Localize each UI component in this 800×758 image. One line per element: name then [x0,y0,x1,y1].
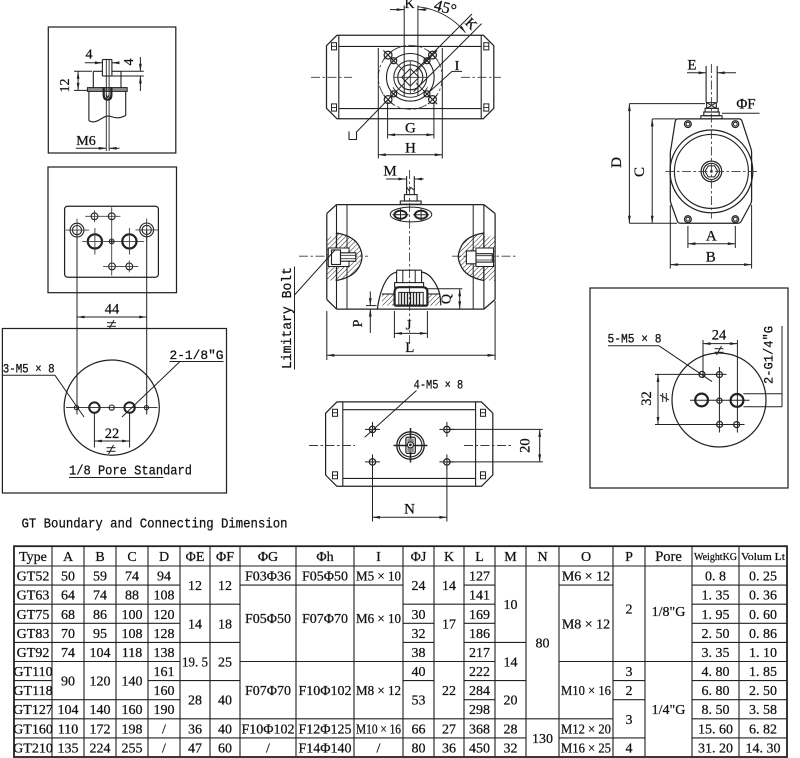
svg-text:ΦG: ΦG [258,550,278,565]
svg-text:M: M [383,164,396,180]
svg-text:F07Φ70: F07Φ70 [302,612,348,627]
svg-text:GT63: GT63 [17,589,50,604]
svg-text:4. 80: 4. 80 [702,665,730,680]
svg-text:M16 × 25: M16 × 25 [561,742,611,757]
svg-text:6. 80: 6. 80 [702,684,730,699]
svg-text:N: N [537,550,547,565]
svg-text:10: 10 [504,598,518,613]
svg-text:2: 2 [626,684,633,699]
svg-text:H: H [405,140,416,156]
svg-text:36: 36 [442,742,456,757]
svg-text:0. 8: 0. 8 [705,570,726,585]
svg-text:5-M5 × 8: 5-M5 × 8 [608,332,662,346]
svg-text:20: 20 [518,438,534,453]
svg-text:P: P [351,319,366,327]
svg-text:450: 450 [469,742,490,757]
svg-text:298: 298 [469,703,490,718]
svg-text:80: 80 [412,742,426,757]
svg-text:0. 86: 0. 86 [749,627,777,642]
svg-text:B: B [706,250,716,266]
svg-text:3-M5 × 8: 3-M5 × 8 [3,363,55,377]
svg-text:32: 32 [639,391,655,406]
svg-text:Limitary Bolt: Limitary Bolt [280,267,296,369]
svg-text:172: 172 [90,722,111,737]
svg-text:22: 22 [442,684,456,699]
svg-text:2. 50: 2. 50 [702,627,730,642]
svg-text:222: 222 [469,665,490,680]
svg-text:6. 82: 6. 82 [749,722,777,737]
svg-text:GT Boundary and Connecting Dim: GT Boundary and Connecting Dimension [22,517,288,533]
svg-text:GT75: GT75 [17,608,50,623]
svg-text:GT210: GT210 [13,742,53,757]
svg-text:B: B [95,550,104,565]
svg-text:0. 25: 0. 25 [749,570,777,585]
svg-text:130: 130 [532,732,553,747]
svg-text:A: A [706,229,717,245]
svg-text:1/8"G: 1/8"G [652,605,686,620]
svg-text:G: G [405,121,416,137]
svg-text:104: 104 [58,703,79,718]
svg-text:4-M5 × 8: 4-M5 × 8 [414,379,464,393]
svg-text:F10Φ102: F10Φ102 [241,722,294,737]
svg-text:O: O [581,550,591,565]
svg-text:8. 50: 8. 50 [702,703,730,718]
svg-text:127: 127 [469,570,490,585]
svg-text:/: / [377,742,381,757]
svg-text:/: / [162,742,166,757]
svg-text:1. 35: 1. 35 [702,589,730,604]
svg-text:K: K [444,550,454,565]
svg-text:50: 50 [61,570,75,585]
svg-text:2-1/8"G: 2-1/8"G [170,349,224,363]
svg-text:3. 35: 3. 35 [702,646,730,661]
svg-text:24: 24 [712,328,727,344]
svg-text:Pore: Pore [655,549,682,565]
svg-text:27: 27 [442,722,456,737]
svg-text:88: 88 [125,589,139,604]
svg-text:108: 108 [154,589,175,604]
svg-text:1. 85: 1. 85 [749,665,777,680]
svg-text:L: L [405,340,414,356]
svg-text:108: 108 [122,627,143,642]
svg-text:53: 53 [412,694,426,709]
svg-text:36: 36 [188,722,202,737]
svg-text:110: 110 [58,722,78,737]
svg-text:20: 20 [504,694,518,709]
svg-text:74: 74 [61,646,75,661]
svg-text:74: 74 [125,570,139,585]
svg-text:14: 14 [504,656,518,671]
svg-text:17: 17 [442,617,456,632]
svg-text:186: 186 [469,627,490,642]
svg-text:GT160: GT160 [13,722,53,737]
svg-text:4: 4 [626,742,633,757]
svg-text:95: 95 [93,627,107,642]
svg-text:0. 60: 0. 60 [749,608,777,623]
svg-text:80: 80 [536,636,550,651]
svg-text:66: 66 [412,722,426,737]
svg-text:M10 × 16: M10 × 16 [561,684,611,699]
svg-text:47: 47 [188,742,202,757]
svg-text:217: 217 [469,646,490,661]
svg-text:100: 100 [122,608,143,623]
svg-text:24: 24 [412,579,426,594]
svg-text:4: 4 [86,48,93,63]
svg-text:22: 22 [105,426,120,442]
svg-text:E: E [687,58,696,74]
svg-text:I: I [376,550,381,565]
svg-text:18: 18 [218,617,232,632]
svg-text:M12 × 20: M12 × 20 [561,722,611,737]
svg-text:Type: Type [19,550,47,565]
svg-text:Q: Q [440,294,455,304]
svg-text:C: C [127,550,136,565]
svg-text:A: A [63,550,74,565]
svg-text:160: 160 [122,703,143,718]
svg-text:L: L [475,550,484,565]
svg-text:12: 12 [58,79,73,93]
svg-text:2. 50: 2. 50 [749,684,777,699]
svg-text:1. 10: 1. 10 [749,646,777,661]
svg-text:F07Φ70: F07Φ70 [245,684,291,699]
svg-text:3: 3 [626,665,633,680]
svg-text:44: 44 [105,302,120,318]
svg-text:135: 135 [58,742,79,757]
svg-text:40: 40 [412,665,426,680]
svg-text:128: 128 [154,627,175,642]
svg-text:70: 70 [61,627,75,642]
svg-text:N: N [404,501,415,517]
svg-text:64: 64 [61,589,75,604]
svg-text:GT127: GT127 [13,703,53,718]
svg-text:F14Φ140: F14Φ140 [298,742,351,757]
svg-text:30: 30 [412,608,426,623]
svg-text:M6: M6 [76,134,95,149]
svg-text:140: 140 [90,703,111,718]
svg-text:M5 × 10: M5 × 10 [356,570,401,585]
svg-text:12: 12 [218,579,232,594]
svg-text:28: 28 [188,694,202,709]
svg-text:169: 169 [469,608,490,623]
svg-text:M6 × 12: M6 × 12 [562,570,610,585]
svg-text:15. 60: 15. 60 [698,722,733,737]
svg-text:74: 74 [93,589,107,604]
svg-text:28: 28 [504,722,518,737]
svg-text:F03Φ36: F03Φ36 [245,570,291,585]
svg-text:59: 59 [93,570,107,585]
svg-text:31. 20: 31. 20 [698,742,733,757]
svg-text:14: 14 [188,617,202,632]
svg-text:J: J [406,317,412,333]
svg-text:K: K [404,0,414,12]
svg-text:GT118: GT118 [13,684,52,699]
svg-text:120: 120 [90,675,111,690]
svg-text:M: M [504,550,517,565]
svg-text:190: 190 [154,703,175,718]
svg-text:F12Φ125: F12Φ125 [298,722,351,737]
svg-text:120: 120 [154,608,175,623]
svg-text:ΦF: ΦF [216,550,234,565]
svg-text:118: 118 [122,646,142,661]
svg-text:GT92: GT92 [17,646,50,661]
svg-text:F05Φ50: F05Φ50 [302,570,348,585]
svg-text:M8 × 12: M8 × 12 [356,684,401,699]
svg-text:160: 160 [154,684,175,699]
svg-text:86: 86 [93,608,107,623]
svg-text:2-G1/4"G: 2-G1/4"G [762,326,777,384]
svg-text:198: 198 [122,722,143,737]
svg-text:1. 95: 1. 95 [702,608,730,623]
svg-text:F05Φ50: F05Φ50 [245,612,291,627]
svg-text:19. 5: 19. 5 [182,656,208,671]
svg-text:Volum Lt: Volum Lt [741,551,785,563]
svg-text:138: 138 [154,646,175,661]
svg-text:32: 32 [412,627,426,642]
svg-text:224: 224 [90,742,111,757]
svg-text:ΦJ: ΦJ [411,550,427,565]
svg-text:60: 60 [218,742,232,757]
svg-text:32: 32 [504,742,518,757]
svg-text:D: D [609,157,625,168]
svg-text:40: 40 [218,722,232,737]
svg-text:GT83: GT83 [17,627,50,642]
svg-text:38: 38 [412,646,426,661]
svg-text:ΦE: ΦE [186,550,205,565]
svg-text:C: C [632,167,648,177]
svg-text:Φh: Φh [316,550,333,565]
svg-text:94: 94 [157,570,171,585]
svg-text:161: 161 [154,665,175,680]
svg-text:/: / [162,722,166,737]
svg-text:12: 12 [188,579,202,594]
svg-text:/: / [266,742,270,757]
svg-text:WeightKG: WeightKG [694,551,737,563]
svg-text:14. 30: 14. 30 [746,742,781,757]
svg-text:F10Φ102: F10Φ102 [298,684,351,699]
svg-text:P: P [625,550,633,565]
svg-text:D: D [159,550,169,565]
svg-text:140: 140 [122,675,143,690]
svg-text:104: 104 [90,646,111,661]
svg-text:40: 40 [218,694,232,709]
svg-text:GT52: GT52 [17,570,50,585]
svg-text:255: 255 [122,742,143,757]
svg-text:368: 368 [469,722,490,737]
svg-text:4: 4 [122,59,137,66]
svg-text:3. 58: 3. 58 [749,703,777,718]
svg-text:2: 2 [626,603,633,618]
svg-text:141: 141 [469,589,490,604]
svg-text:14: 14 [442,579,456,594]
svg-text:1/4"G: 1/4"G [652,703,686,718]
svg-text:25: 25 [218,656,232,671]
svg-text:ΦF: ΦF [736,97,755,113]
svg-text:3: 3 [626,713,633,728]
svg-text:M6 × 10: M6 × 10 [356,612,401,627]
svg-text:GT110: GT110 [13,665,52,680]
svg-text:M8 × 12: M8 × 12 [562,617,610,632]
svg-text:68: 68 [61,608,75,623]
svg-text:M10 × 16: M10 × 16 [356,722,401,737]
svg-text:0. 36: 0. 36 [749,589,777,604]
svg-text:284: 284 [469,684,490,699]
svg-text:90: 90 [61,675,75,690]
